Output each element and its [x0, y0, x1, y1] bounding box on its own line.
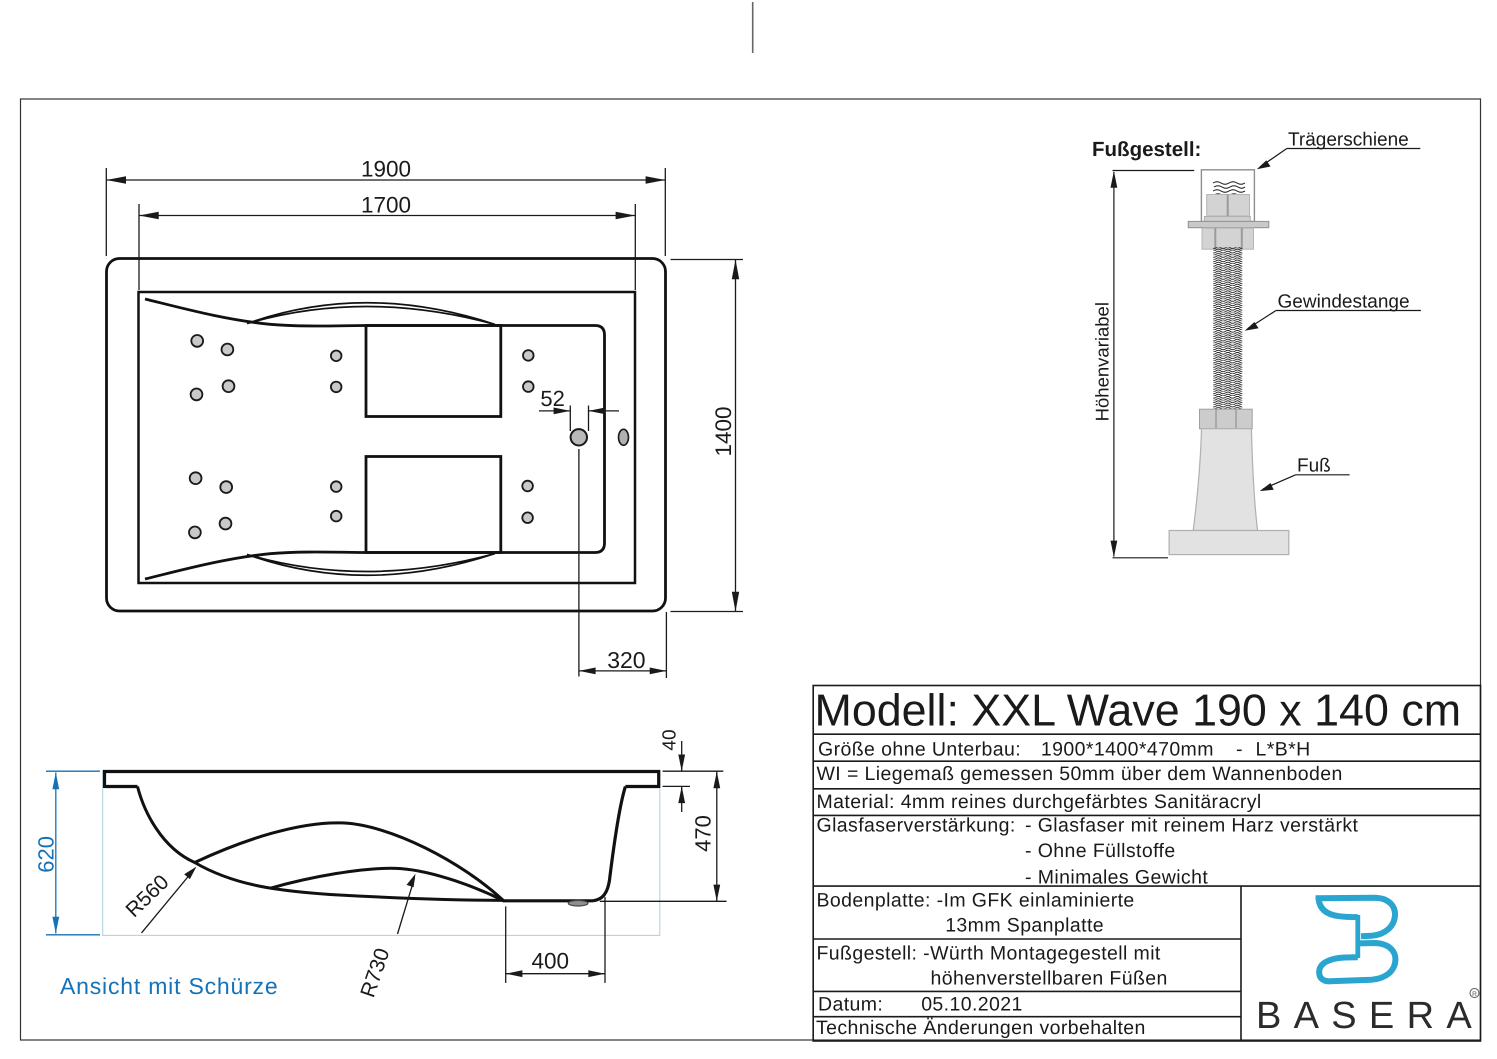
svg-text:400: 400 — [532, 949, 570, 974]
svg-text:40: 40 — [660, 729, 681, 750]
svg-text:Höhenvariabel: Höhenvariabel — [1092, 302, 1113, 421]
svg-text:Bodenplatte: -Im GFK einlamini: Bodenplatte: -Im GFK einlaminierte — [817, 890, 1135, 912]
svg-text:Glasfaserverstärkung:: Glasfaserverstärkung: — [817, 815, 1016, 837]
svg-text:WI = Liegemaß gemessen 50mm üb: WI = Liegemaß gemessen 50mm über dem Wan… — [817, 763, 1343, 785]
svg-text:1700: 1700 — [361, 193, 411, 218]
svg-text:R: R — [1472, 991, 1477, 998]
svg-text:1900*1400*470mm: 1900*1400*470mm — [1041, 739, 1214, 761]
svg-text:Technische Änderungen vorbehal: Technische Änderungen vorbehalten — [816, 1017, 1146, 1039]
svg-text:Modell: XXL Wave 190 x 140 cm: Modell: XXL Wave 190 x 140 cm — [815, 686, 1462, 736]
svg-text:1900: 1900 — [361, 157, 411, 182]
svg-text:320: 320 — [607, 647, 645, 673]
svg-text:Gewindestange: Gewindestange — [1278, 292, 1410, 313]
svg-text:Fußgestell:: Fußgestell: — [1092, 138, 1201, 161]
svg-text:620: 620 — [33, 836, 58, 873]
svg-text:1400: 1400 — [711, 406, 736, 456]
svg-text:-: - — [1236, 739, 1243, 761]
svg-text:höhenverstellbaren Füßen: höhenverstellbaren Füßen — [931, 968, 1168, 990]
svg-text:- Ohne Füllstoffe: - Ohne Füllstoffe — [1025, 840, 1176, 862]
svg-text:Datum:: Datum: — [818, 994, 883, 1016]
svg-text:Größe ohne Unterbau:: Größe ohne Unterbau: — [818, 739, 1021, 761]
svg-text:05.10.2021: 05.10.2021 — [921, 994, 1023, 1016]
svg-text:13mm Spanplatte: 13mm Spanplatte — [945, 915, 1104, 937]
svg-text:Ansicht mit Schürze: Ansicht mit Schürze — [60, 973, 278, 999]
svg-text:Trägerschiene: Trägerschiene — [1288, 130, 1409, 151]
svg-text:- Minimales Gewicht: - Minimales Gewicht — [1025, 866, 1208, 888]
svg-text:Fußgestell: -Würth Montagegest: Fußgestell: -Würth Montagegestell mit — [817, 943, 1161, 965]
svg-text:Fuß: Fuß — [1297, 456, 1331, 477]
svg-text:470: 470 — [691, 815, 716, 852]
svg-text:- Glasfaser mit reinem Harz ve: - Glasfaser mit reinem Harz verstärkt — [1025, 815, 1359, 837]
svg-text:Material: 4mm reines durchgefä: Material: 4mm reines durchgefärbtes Sani… — [817, 791, 1262, 813]
svg-text:52: 52 — [540, 386, 564, 411]
svg-text:L*B*H: L*B*H — [1256, 739, 1311, 761]
svg-text:BASERA: BASERA — [1256, 995, 1484, 1037]
